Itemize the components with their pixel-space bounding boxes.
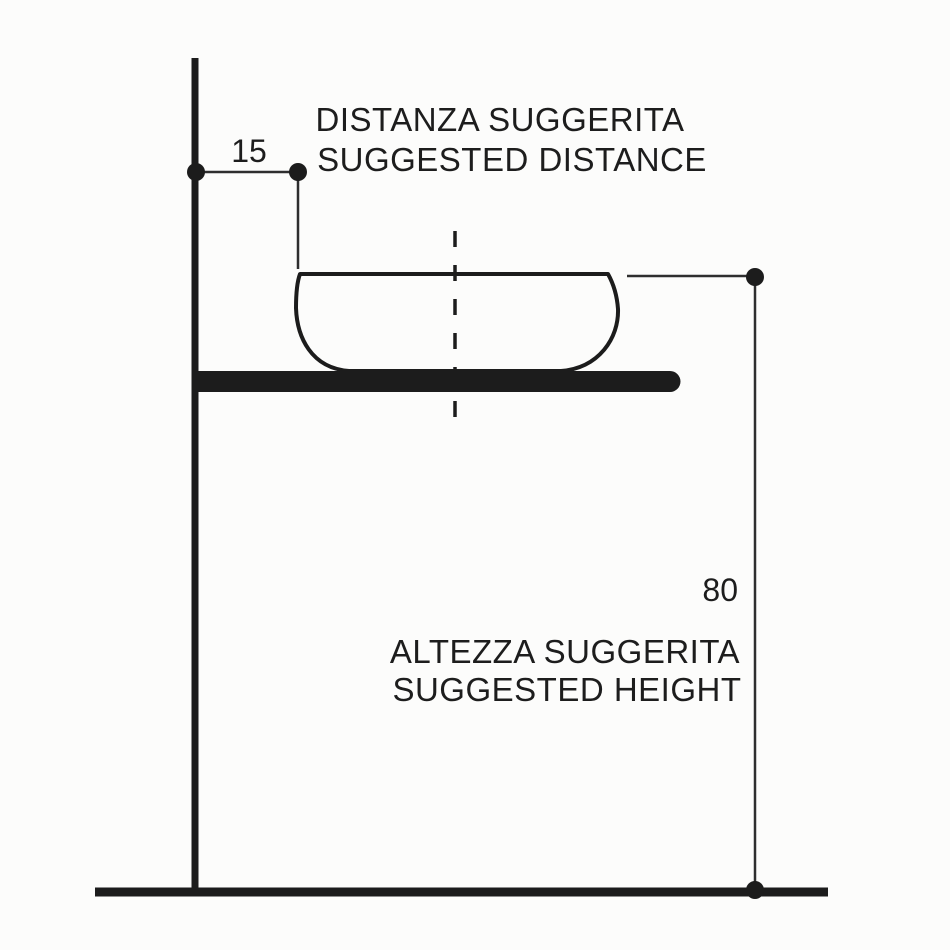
countertop-shelf — [192, 371, 681, 392]
distance-title-italian: DISTANZA SUGGERITA — [316, 101, 685, 138]
distance-title-english: SUGGESTED DISTANCE — [317, 141, 707, 178]
washbasin-outline — [296, 274, 618, 371]
distance-dim-dot-left — [187, 163, 205, 181]
distance-dim-dot-right — [289, 163, 307, 181]
washbasin-installation-diagram: 15 80 DISTANZA SUGGERITA SUGGESTED DISTA… — [0, 0, 950, 950]
height-title-italian: ALTEZZA SUGGERITA — [390, 633, 740, 670]
distance-value-label: 15 — [231, 133, 267, 169]
technical-drawing: 15 80 DISTANZA SUGGERITA SUGGESTED DISTA… — [0, 0, 950, 950]
height-dim-dot-bottom — [746, 881, 764, 899]
height-dim-dot-top — [746, 268, 764, 286]
height-title-english: SUGGESTED HEIGHT — [392, 671, 741, 708]
height-value-label: 80 — [702, 572, 738, 608]
